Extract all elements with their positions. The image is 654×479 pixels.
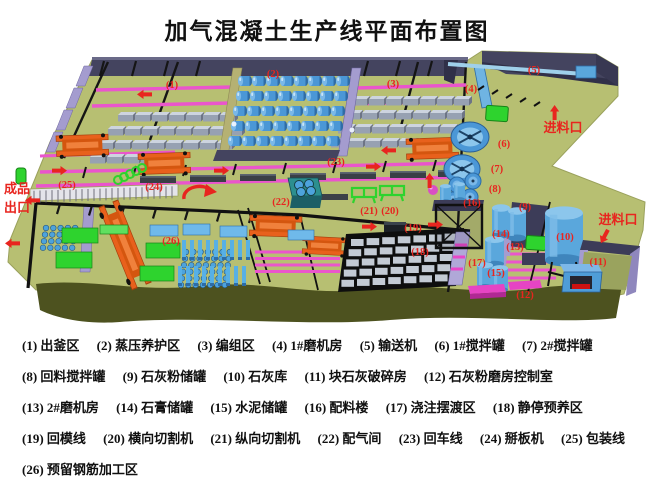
legend-item-11: (11) 块石灰破碎房: [305, 369, 407, 384]
area-label-22: (22): [272, 197, 290, 208]
area-label-3: (3): [387, 79, 400, 90]
area-label-9: (9): [519, 202, 532, 213]
legend-item-8: (8) 回料搅拌罐: [22, 369, 105, 384]
factory-layout-diagram: (1) (2) (3) (4) (5) (6) (7) (8) (9) (10)…: [0, 46, 654, 338]
legend-item-25: (25) 包装线: [561, 431, 625, 446]
legend-item-13: (13) 2#磨机房: [22, 400, 99, 415]
legend-item-16: (16) 配料楼: [305, 400, 369, 415]
area-label-11: (11): [590, 257, 607, 268]
area-label-21: (21): [360, 206, 378, 217]
area-label-24: (24): [145, 182, 163, 193]
area-label-7: (7): [491, 164, 504, 175]
legend-item-10: (10) 石灰库: [223, 369, 287, 384]
area-label-23: (23): [327, 157, 345, 168]
legend-item-7: (7) 2#搅拌罐: [522, 338, 592, 353]
area-label-5: (5): [528, 65, 541, 76]
legend-line-4: (19) 回模线 (20) 横向切割机 (21) 纵向切割机 (22) 配气间 …: [22, 423, 646, 454]
legend: (1) 出釜区 (2) 蒸压养护区 (3) 编组区 (4) 1#磨机房 (5) …: [22, 330, 646, 479]
legend-item-12: (12) 石灰粉磨房控制室: [424, 369, 553, 384]
legend-item-6: (6) 1#搅拌罐: [434, 338, 504, 353]
finished-exit-label-line1: 成品: [4, 181, 30, 196]
area-label-4: (4): [465, 84, 478, 95]
area-label-10: (10): [556, 232, 574, 243]
legend-item-20: (20) 横向切割机: [103, 431, 193, 446]
legend-line-2: (8) 回料搅拌罐 (9) 石灰粉储罐 (10) 石灰库 (11) 块石灰破碎房…: [22, 361, 646, 392]
legend-item-5: (5) 输送机: [360, 338, 417, 353]
area-label-16: (16): [463, 198, 481, 209]
area-label-12: (12): [516, 290, 534, 301]
legend-item-17: (17) 浇注摆渡区: [386, 400, 476, 415]
area-label-26: (26): [162, 236, 180, 247]
page: 加气混凝土生产线平面布置图: [0, 0, 654, 479]
area-label-13: (13): [506, 242, 524, 253]
area-label-2: (2): [267, 69, 280, 80]
legend-line-1: (1) 出釜区 (2) 蒸压养护区 (3) 编组区 (4) 1#磨机房 (5) …: [22, 330, 646, 361]
area-label-15: (15): [487, 268, 505, 279]
legend-item-2: (2) 蒸压养护区: [97, 338, 180, 353]
mill-2-machine: [526, 235, 547, 250]
legend-item-4: (4) 1#磨机房: [272, 338, 342, 353]
legend-line-5: (26) 预留钢筋加工区: [22, 454, 646, 479]
legend-item-23: (23) 回车线: [399, 431, 463, 446]
area-label-8: (8): [489, 184, 502, 195]
legend-item-1: (1) 出釜区: [22, 338, 79, 353]
area-label-25: (25): [58, 180, 76, 191]
feed-inlet-top-label: 进料口: [543, 120, 582, 135]
feed-inlet-right-label: 进料口: [598, 212, 637, 227]
legend-item-14: (14) 石膏储罐: [116, 400, 193, 415]
area-label-1: (1): [166, 80, 179, 91]
area-label-17: (17): [468, 258, 486, 269]
legend-item-3: (3) 编组区: [197, 338, 254, 353]
finished-exit-label-line2: 出口: [4, 200, 30, 215]
legend-item-19: (19) 回模线: [22, 431, 86, 446]
mill-machine: [485, 105, 508, 121]
legend-item-9: (9) 石灰粉储罐: [123, 369, 206, 384]
gas-distribution-box: [288, 178, 322, 208]
page-title: 加气混凝土生产线平面布置图: [0, 12, 654, 46]
legend-item-24: (24) 掰板机: [480, 431, 544, 446]
legend-item-21: (21) 纵向切割机: [210, 431, 300, 446]
legend-line-3: (13) 2#磨机房 (14) 石膏储罐 (15) 水泥储罐 (16) 配料楼 …: [22, 392, 646, 423]
mixing-tank-1: [451, 122, 489, 152]
area-label-6: (6): [498, 139, 511, 150]
legend-item-18: (18) 静停预养区: [493, 400, 583, 415]
legend-item-15: (15) 水泥储罐: [210, 400, 287, 415]
area-label-14: (14): [492, 229, 510, 240]
area-label-19: (19): [404, 223, 422, 234]
legend-item-22: (22) 配气间: [318, 431, 382, 446]
area-label-18: (18): [411, 247, 429, 258]
area-label-20: (20): [381, 206, 399, 217]
legend-item-26: (26) 预留钢筋加工区: [22, 462, 138, 477]
